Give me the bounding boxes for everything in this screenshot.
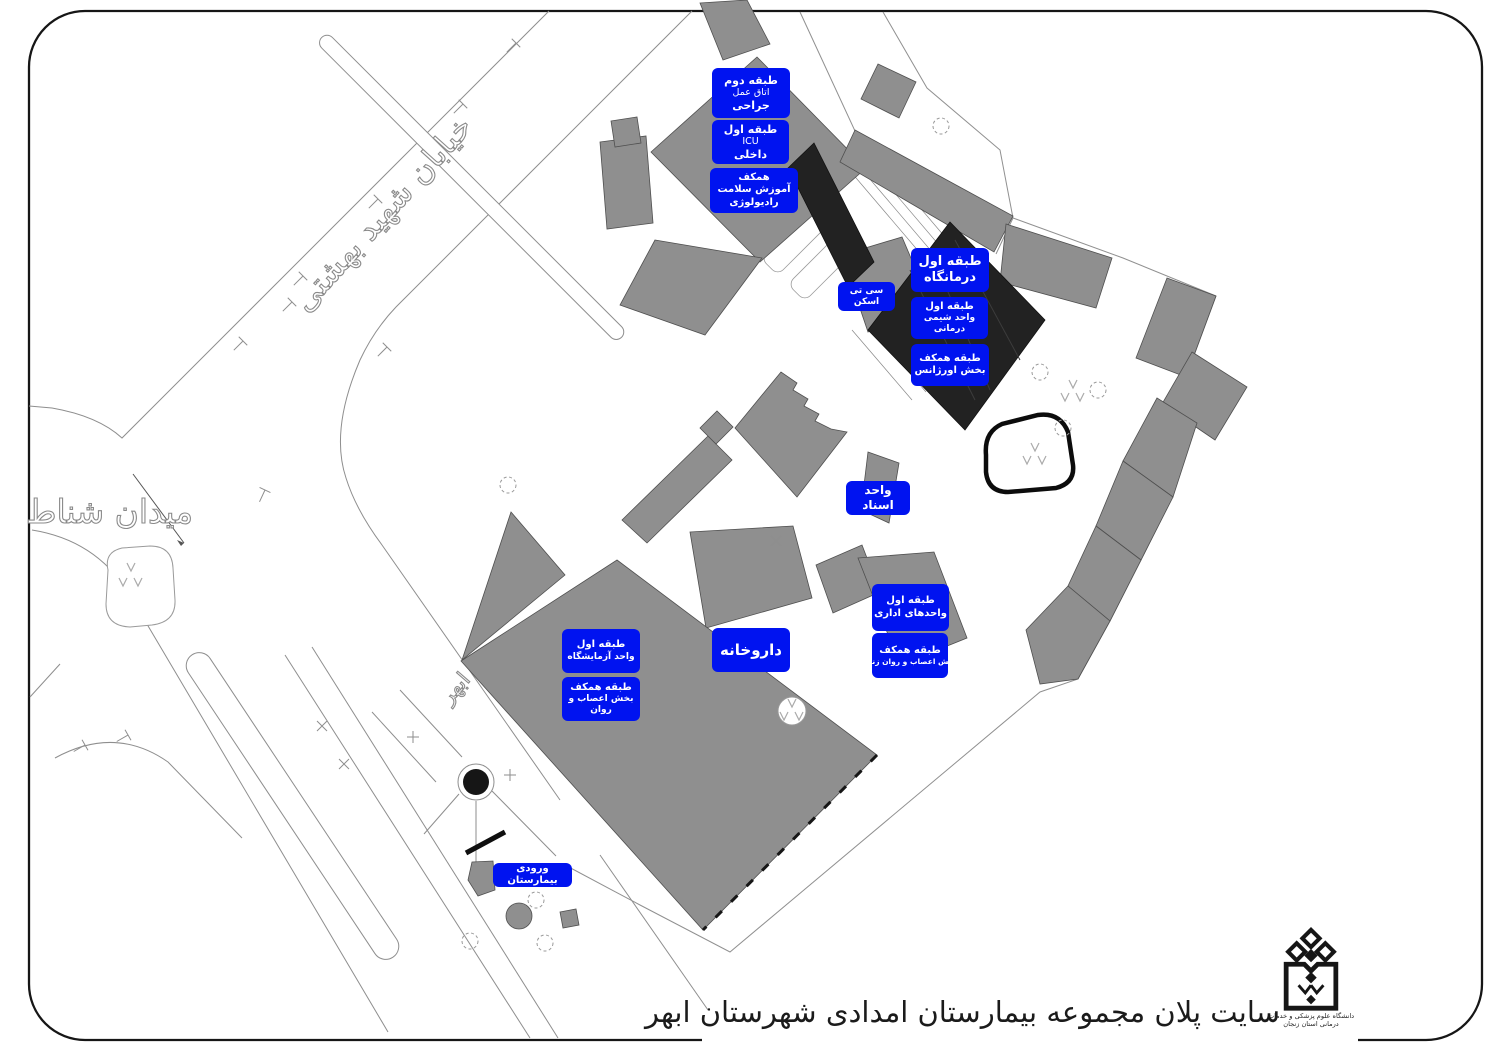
label-line: طبقه اول bbox=[577, 639, 626, 651]
square-green-blob bbox=[106, 546, 175, 627]
label-line: واحد شیمی درمانی bbox=[913, 313, 986, 335]
buildings-gray bbox=[461, 0, 1247, 930]
label-line: طبقه همکف bbox=[570, 682, 632, 694]
map-label-pharmacy: داروخانه bbox=[712, 628, 790, 672]
label-line: طبقه همکف bbox=[879, 645, 941, 657]
entrance-tree-filled bbox=[506, 903, 532, 929]
map-label-ground-floor-neuro: طبقه همکف بخش اعصاب و روان bbox=[562, 677, 640, 721]
label-line: همکف bbox=[738, 172, 769, 184]
map-label-ground-floor-emergency: طبقه همکف بخش اورژانس bbox=[911, 344, 989, 386]
building-entrance-kiosk bbox=[468, 861, 495, 896]
label-line: سی تی اسکن bbox=[840, 286, 893, 308]
label-line: واحد اسناد bbox=[848, 483, 908, 512]
map-label-first-floor-clinic: طبقه اول درمانگاه bbox=[911, 248, 989, 292]
map-label-first-floor-chemotherapy: طبقه اول واحد شیمی درمانی bbox=[911, 297, 988, 339]
building-pharmacy bbox=[690, 526, 812, 628]
site-plan-page: طبقه دوم اتاق عمل جراحی طبقه اول ICU داخ… bbox=[0, 0, 1500, 1061]
label-line: اتاق عمل bbox=[733, 87, 770, 99]
university-logo: دانشگاه علوم پزشکی و خدمات درمانی استان … bbox=[1262, 926, 1360, 1028]
map-label-ct-scan: سی تی اسکن bbox=[838, 282, 895, 311]
entrance-roundabout bbox=[458, 764, 494, 800]
label-line: بخش اورژانس bbox=[914, 365, 985, 377]
label-line: بخش اعصاب و روان bbox=[564, 694, 638, 716]
label-line: واحد آزمایشگاه bbox=[567, 652, 634, 663]
label-line: طبقه اول bbox=[724, 123, 777, 136]
map-label-first-floor-laboratory: طبقه اول واحد آزمایشگاه bbox=[562, 629, 640, 673]
label-line: ICU bbox=[742, 136, 758, 148]
university-logo-icon bbox=[1272, 926, 1350, 1012]
entrance-wall bbox=[466, 832, 505, 853]
building-central-band bbox=[622, 436, 732, 543]
square-name: میدان شناط bbox=[22, 492, 197, 531]
label-line: طبقه اول bbox=[925, 301, 974, 313]
building-topleft-a bbox=[600, 136, 653, 229]
label-line: طبقه اول bbox=[918, 254, 981, 270]
label-line: آموزش سلامت bbox=[717, 184, 790, 196]
map-label-second-floor-surgery: طبقه دوم اتاق عمل جراحی bbox=[712, 68, 790, 118]
label-line: جراحی bbox=[732, 99, 770, 112]
label-line: داروخانه bbox=[720, 641, 782, 659]
map-label-first-floor-admin: طبقه اول واحدهای اداری bbox=[872, 584, 949, 631]
map-label-ground-floor-neuro-women: طبقه همکف بخش اعصاب و روان زنان bbox=[872, 633, 948, 678]
round-tree-outline bbox=[778, 697, 806, 725]
building-entrance-small bbox=[560, 909, 579, 928]
building-band-ne bbox=[840, 130, 1013, 252]
map-label-documents-unit: واحد اسناد bbox=[846, 481, 910, 515]
label-line: ورودی بیمارستان bbox=[495, 863, 570, 887]
label-line: واحدهای اداری bbox=[874, 608, 947, 620]
label-line: طبقه اول bbox=[886, 595, 935, 607]
university-logo-caption: دانشگاه علوم پزشکی و خدمات درمانی استان … bbox=[1262, 1013, 1360, 1028]
label-line: داخلی bbox=[734, 148, 767, 161]
building-topleft-b bbox=[611, 117, 641, 147]
courtyard-blob bbox=[986, 415, 1073, 492]
label-line: بخش اعصاب و روان زنان bbox=[863, 657, 957, 666]
map-label-first-floor-icu: طبقه اول ICU داخلی bbox=[712, 120, 789, 164]
building-top-small bbox=[700, 0, 770, 60]
map-label-ground-floor-health-radiology: همکف آموزش سلامت رادیولوژی bbox=[710, 168, 798, 213]
building-documents bbox=[735, 372, 847, 497]
label-line: درمانگاه bbox=[924, 270, 976, 286]
building-main-ward-ext bbox=[620, 240, 762, 335]
building-north-small bbox=[861, 64, 916, 118]
label-line: طبقه دوم bbox=[724, 74, 778, 87]
label-line: طبقه همکف bbox=[919, 353, 981, 365]
label-line: رادیولوژی bbox=[729, 197, 778, 209]
map-label-hospital-entrance: ورودی بیمارستان bbox=[493, 863, 572, 887]
sheet-title: سایت پلان مجموعه بیمارستان امدادی شهرستا… bbox=[700, 995, 1280, 1029]
